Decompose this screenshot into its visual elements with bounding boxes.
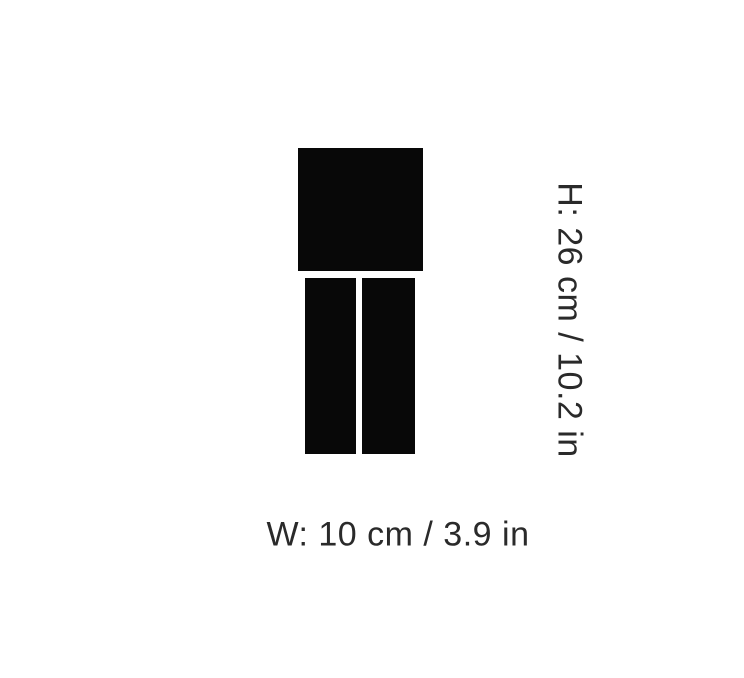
width-dimension-label: W: 10 cm / 3.9 in [267, 516, 530, 555]
product-top-block [298, 148, 423, 271]
product-left-leg-block [305, 278, 356, 454]
product-right-leg-block [362, 278, 415, 454]
height-dimension-label: H: 26 cm / 10.2 in [550, 182, 589, 457]
dimension-diagram: H: 26 cm / 10.2 in W: 10 cm / 3.9 in [0, 0, 744, 678]
